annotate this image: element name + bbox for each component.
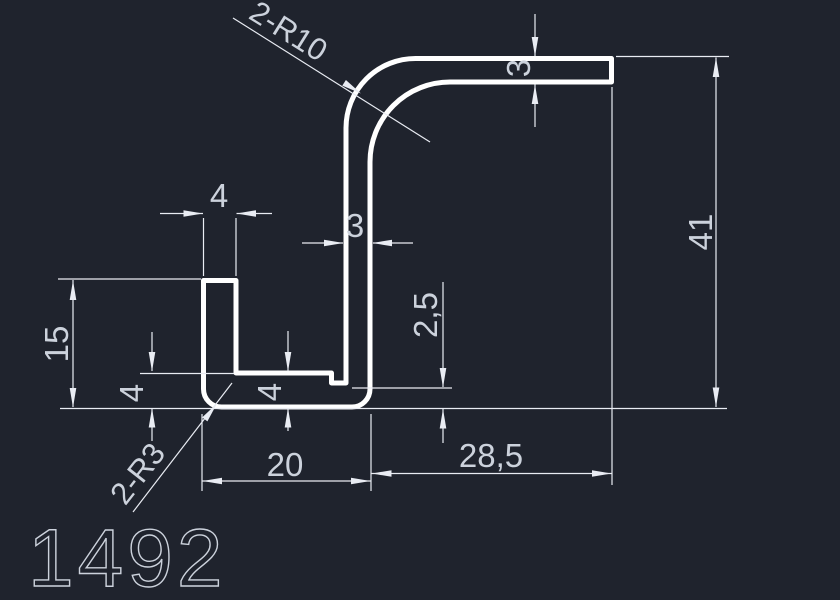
dim-text: 15: [38, 326, 75, 363]
arrow-right-icon: [324, 240, 344, 247]
dim-text: 4: [113, 384, 150, 402]
arrow-up-icon: [70, 281, 77, 301]
dim-text: 20: [267, 446, 304, 483]
dim-top-flange-thickness: 3: [500, 14, 538, 127]
dim-text: 41: [682, 214, 719, 251]
arrow-down-icon: [70, 388, 77, 408]
arrow-left-icon: [373, 240, 393, 247]
arrow-up-icon: [285, 408, 292, 428]
arrow-diagonal-icon: [202, 404, 217, 422]
dim-web-thickness: 3: [302, 207, 413, 246]
dim-base-width: 20: [202, 446, 371, 484]
arrow-up-icon: [440, 409, 447, 429]
arrow-right-icon: [184, 210, 204, 217]
arrow-down-icon: [532, 37, 539, 57]
arrow-left-icon: [203, 478, 223, 485]
dim-right-flange-extent: 28,5: [371, 437, 612, 477]
dim-text: 3: [346, 207, 364, 244]
leader-bend-radius: 2-R10: [233, 0, 430, 142]
arrow-down-icon: [149, 352, 156, 372]
dim-leg-height: 15: [38, 280, 76, 408]
part-number: 1492: [28, 513, 226, 600]
dim-leg-width: 4: [160, 177, 272, 276]
arrow-down-icon: [285, 352, 292, 372]
arrow-left-icon: [237, 210, 257, 217]
dim-text: 3: [500, 59, 537, 77]
arrow-right-icon: [351, 478, 371, 485]
leader-text: 2-R10: [243, 0, 333, 68]
cad-canvas: 3 41 28,5 20 15 4: [0, 0, 840, 600]
dim-text: 4: [251, 383, 288, 401]
arrow-down-icon: [440, 368, 447, 388]
arrow-right-icon: [592, 470, 612, 477]
dim-base-thickness-left: 4: [113, 332, 155, 441]
profile-outline: [204, 59, 612, 408]
dim-base-thickness-mid: 4: [251, 331, 291, 431]
dim-step-height: 2,5: [407, 282, 446, 443]
dim-overall-height: 41: [682, 58, 719, 408]
arrow-down-icon: [713, 388, 720, 408]
dim-text: 4: [210, 177, 228, 214]
dim-text: 28,5: [459, 437, 523, 474]
arrow-up-icon: [149, 408, 156, 428]
arrow-up-icon: [713, 58, 720, 78]
dim-text: 2,5: [407, 292, 444, 338]
arrow-up-icon: [532, 85, 539, 105]
arrow-left-icon: [372, 470, 392, 477]
extension-lines: [58, 57, 729, 492]
